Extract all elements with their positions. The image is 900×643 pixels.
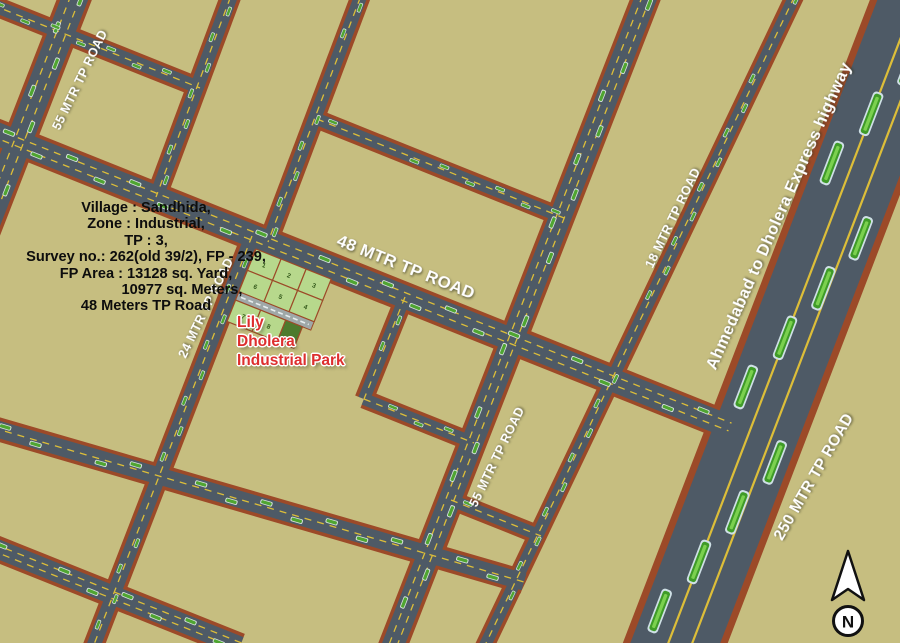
site-info-text: Village : Sandhida, Zone : Industrial, T… xyxy=(8,200,284,315)
site-label-line: Industrial Park xyxy=(237,351,345,370)
site-label-line: Dholera xyxy=(237,332,345,351)
info-survey-no: Survey no.: 262(old 39/2), FP - 239, xyxy=(8,249,284,265)
info-tp: TP : 3, xyxy=(8,233,284,249)
map-canvas: 1 2 3 6 5 4 7 8 55 MTR TP ROAD 24 MTR TP… xyxy=(0,0,900,643)
site-label-lily-dholera-industrial-park: Lily Dholera Industrial Park xyxy=(237,313,345,370)
site-label-line: Lily xyxy=(237,313,345,332)
info-zone: Zone : Industrial, xyxy=(8,216,284,232)
road-map: 1 2 3 6 5 4 7 8 55 MTR TP ROAD 24 MTR TP… xyxy=(0,0,900,643)
info-fp-area-meters: 10977 sq. Meters, xyxy=(80,282,284,298)
compass-north-letter: N xyxy=(842,613,854,632)
info-village: Village : Sandhida, xyxy=(8,200,284,216)
info-fp-area-yard: FP Area : 13128 sq. Yard, xyxy=(8,266,284,282)
